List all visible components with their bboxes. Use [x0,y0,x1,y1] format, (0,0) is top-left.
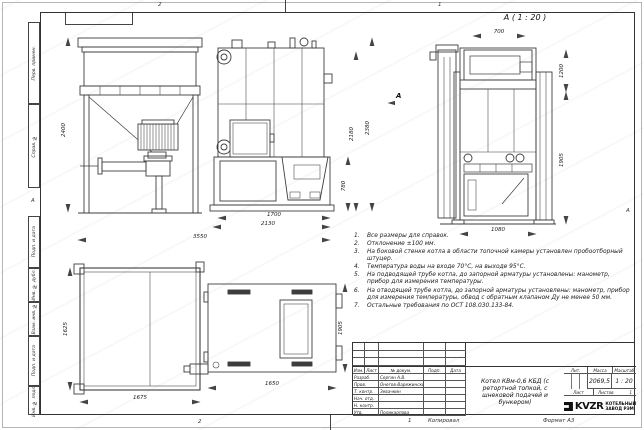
zone-top-2: 2 [158,2,162,8]
dims-boiler-front: 700 1200 1905 1080 [460,29,570,237]
title-block: Изм. Лист № докум. Подп. Дата Разраб. Се… [352,342,635,415]
dim-1625: 1625 [63,322,69,336]
row-name: Зевачкин [379,388,424,395]
stamp-cell-inv-dubl: Инв. № дубл. [28,268,40,302]
note-item: 6.На отводящей трубе котла, до запорной … [354,288,632,302]
stamp-cell-perv-primen: Перв. примен. [28,22,40,104]
dims-plan: 1625 1675 1650 1905 [63,268,349,405]
stamp-cell-vzam-inv: Взам. инв. № [28,302,40,336]
scale-label: Масштаб [613,367,636,374]
row-role: Пров. [353,381,379,388]
dim-2380: 2380 [365,121,371,135]
stamp-cell-podp-data-1: Подп. и дата [28,216,40,268]
dim-1700: 1700 [267,212,281,218]
view-boiler-front [430,45,556,224]
dim-2180: 2180 [349,127,355,141]
view-bunker-side [78,38,202,213]
zone-tick-top [285,0,286,12]
zone-bottom-2: 2 [198,419,202,425]
sheets-label: Листов [598,390,614,395]
stamp-cell-inv-podl: Инв. № подл. [28,386,40,415]
dim-1905-plan: 1905 [338,321,344,335]
stamp-cell-sprav-no: Справ. № [28,104,40,188]
dim-780: 780 [341,180,347,191]
dim-2400: 2400 [61,123,67,137]
dim-700: 700 [494,29,505,35]
drawing-sheet: 2 1 2 А А Перв. примен. Справ. № Подп. и… [0,0,644,430]
signature-table: Изм. Лист № докум. Подп. Дата Разраб. Се… [353,366,466,416]
document-title: Котел КВм-0,6 КБД (с ретортной топкой, с… [466,366,564,416]
note-item: 4.Температура воды на входе 70°С, на вых… [354,264,632,271]
stamp-cell-podp-data-2: Подп. и дата [28,336,40,386]
note-item: 1.Все размеры для справок. [354,233,632,240]
mass-label: Масса [588,367,612,374]
note-item: 2.Отклонение ±100 мм. [354,241,632,248]
zone-tick-bottom [330,415,331,430]
dim-1905-front: 1905 [559,153,565,167]
col-list: Лист [365,367,379,374]
row-name [379,395,424,402]
row-role: Т. контр. [353,388,379,395]
view-boiler-side [210,38,334,211]
note-item: 3.На боковой стенке котла в области топо… [354,249,632,263]
view-arrow-label: А [395,92,401,100]
dim-bunker-height: 2400 [61,38,78,212]
row-name [379,402,424,409]
dim-1200: 1200 [559,64,565,78]
col-izm: Изм. [353,367,365,374]
row-name: Поликарпова [379,409,424,416]
zone-left-a: А [31,198,35,204]
kvzr-logo-text: KVZR [575,401,603,412]
footer-zone-1: 1 [408,418,412,424]
footer-format: Формат А3 [543,418,574,424]
kvzr-logo-icon [564,402,573,411]
view-plan [74,262,342,394]
dim-1650: 1650 [265,381,279,387]
zone-top-1: 1 [438,2,442,8]
revision-table [353,343,466,366]
row-role: Нач. отд. [353,395,379,402]
dim-3550: 3550 [193,234,207,240]
scale-value: 1 : 20 [612,374,636,389]
col-data: Дата [446,367,466,374]
row-name: Онегов-Варежинский [379,381,424,388]
footer-copied-by: Копировал [428,418,459,424]
col-dokum: № докум. [379,367,424,374]
detail-view-label: А ( 1 : 20 ) [503,13,546,22]
mass-value: 2069,5 [588,374,612,389]
company-logo: KVZR КОТЕЛЬНЫЙ ЗАВОД РЭМ [564,396,636,417]
row-role: Разраб. [353,374,379,381]
dim-1675: 1675 [133,395,147,401]
dim-2130: 2130 [261,221,275,227]
col-podp: Подп. [424,367,446,374]
note-item: 7.Остальные требования по ОСТ 108.030.13… [354,303,632,310]
note-item: 5.На подводящей трубе котла, до запорной… [354,272,632,286]
technical-notes: 1.Все размеры для справок. 2.Отклонение … [354,233,632,311]
row-role: Н. контр. [353,402,379,409]
kvzr-logo-caption: КОТЕЛЬНЫЙ ЗАВОД РЭМ [605,402,636,412]
sheets-value: 1 [629,390,632,395]
row-name: Сергин А.В. [379,374,424,381]
sheet-label: Лист [564,389,594,396]
lit-cells [564,374,588,389]
title-block-right: Лит. Масса Масштаб 2069,5 1 : 20 Лист Ли… [564,366,636,416]
row-role: Утв. [353,409,379,416]
lit-label: Лит. [564,367,588,374]
